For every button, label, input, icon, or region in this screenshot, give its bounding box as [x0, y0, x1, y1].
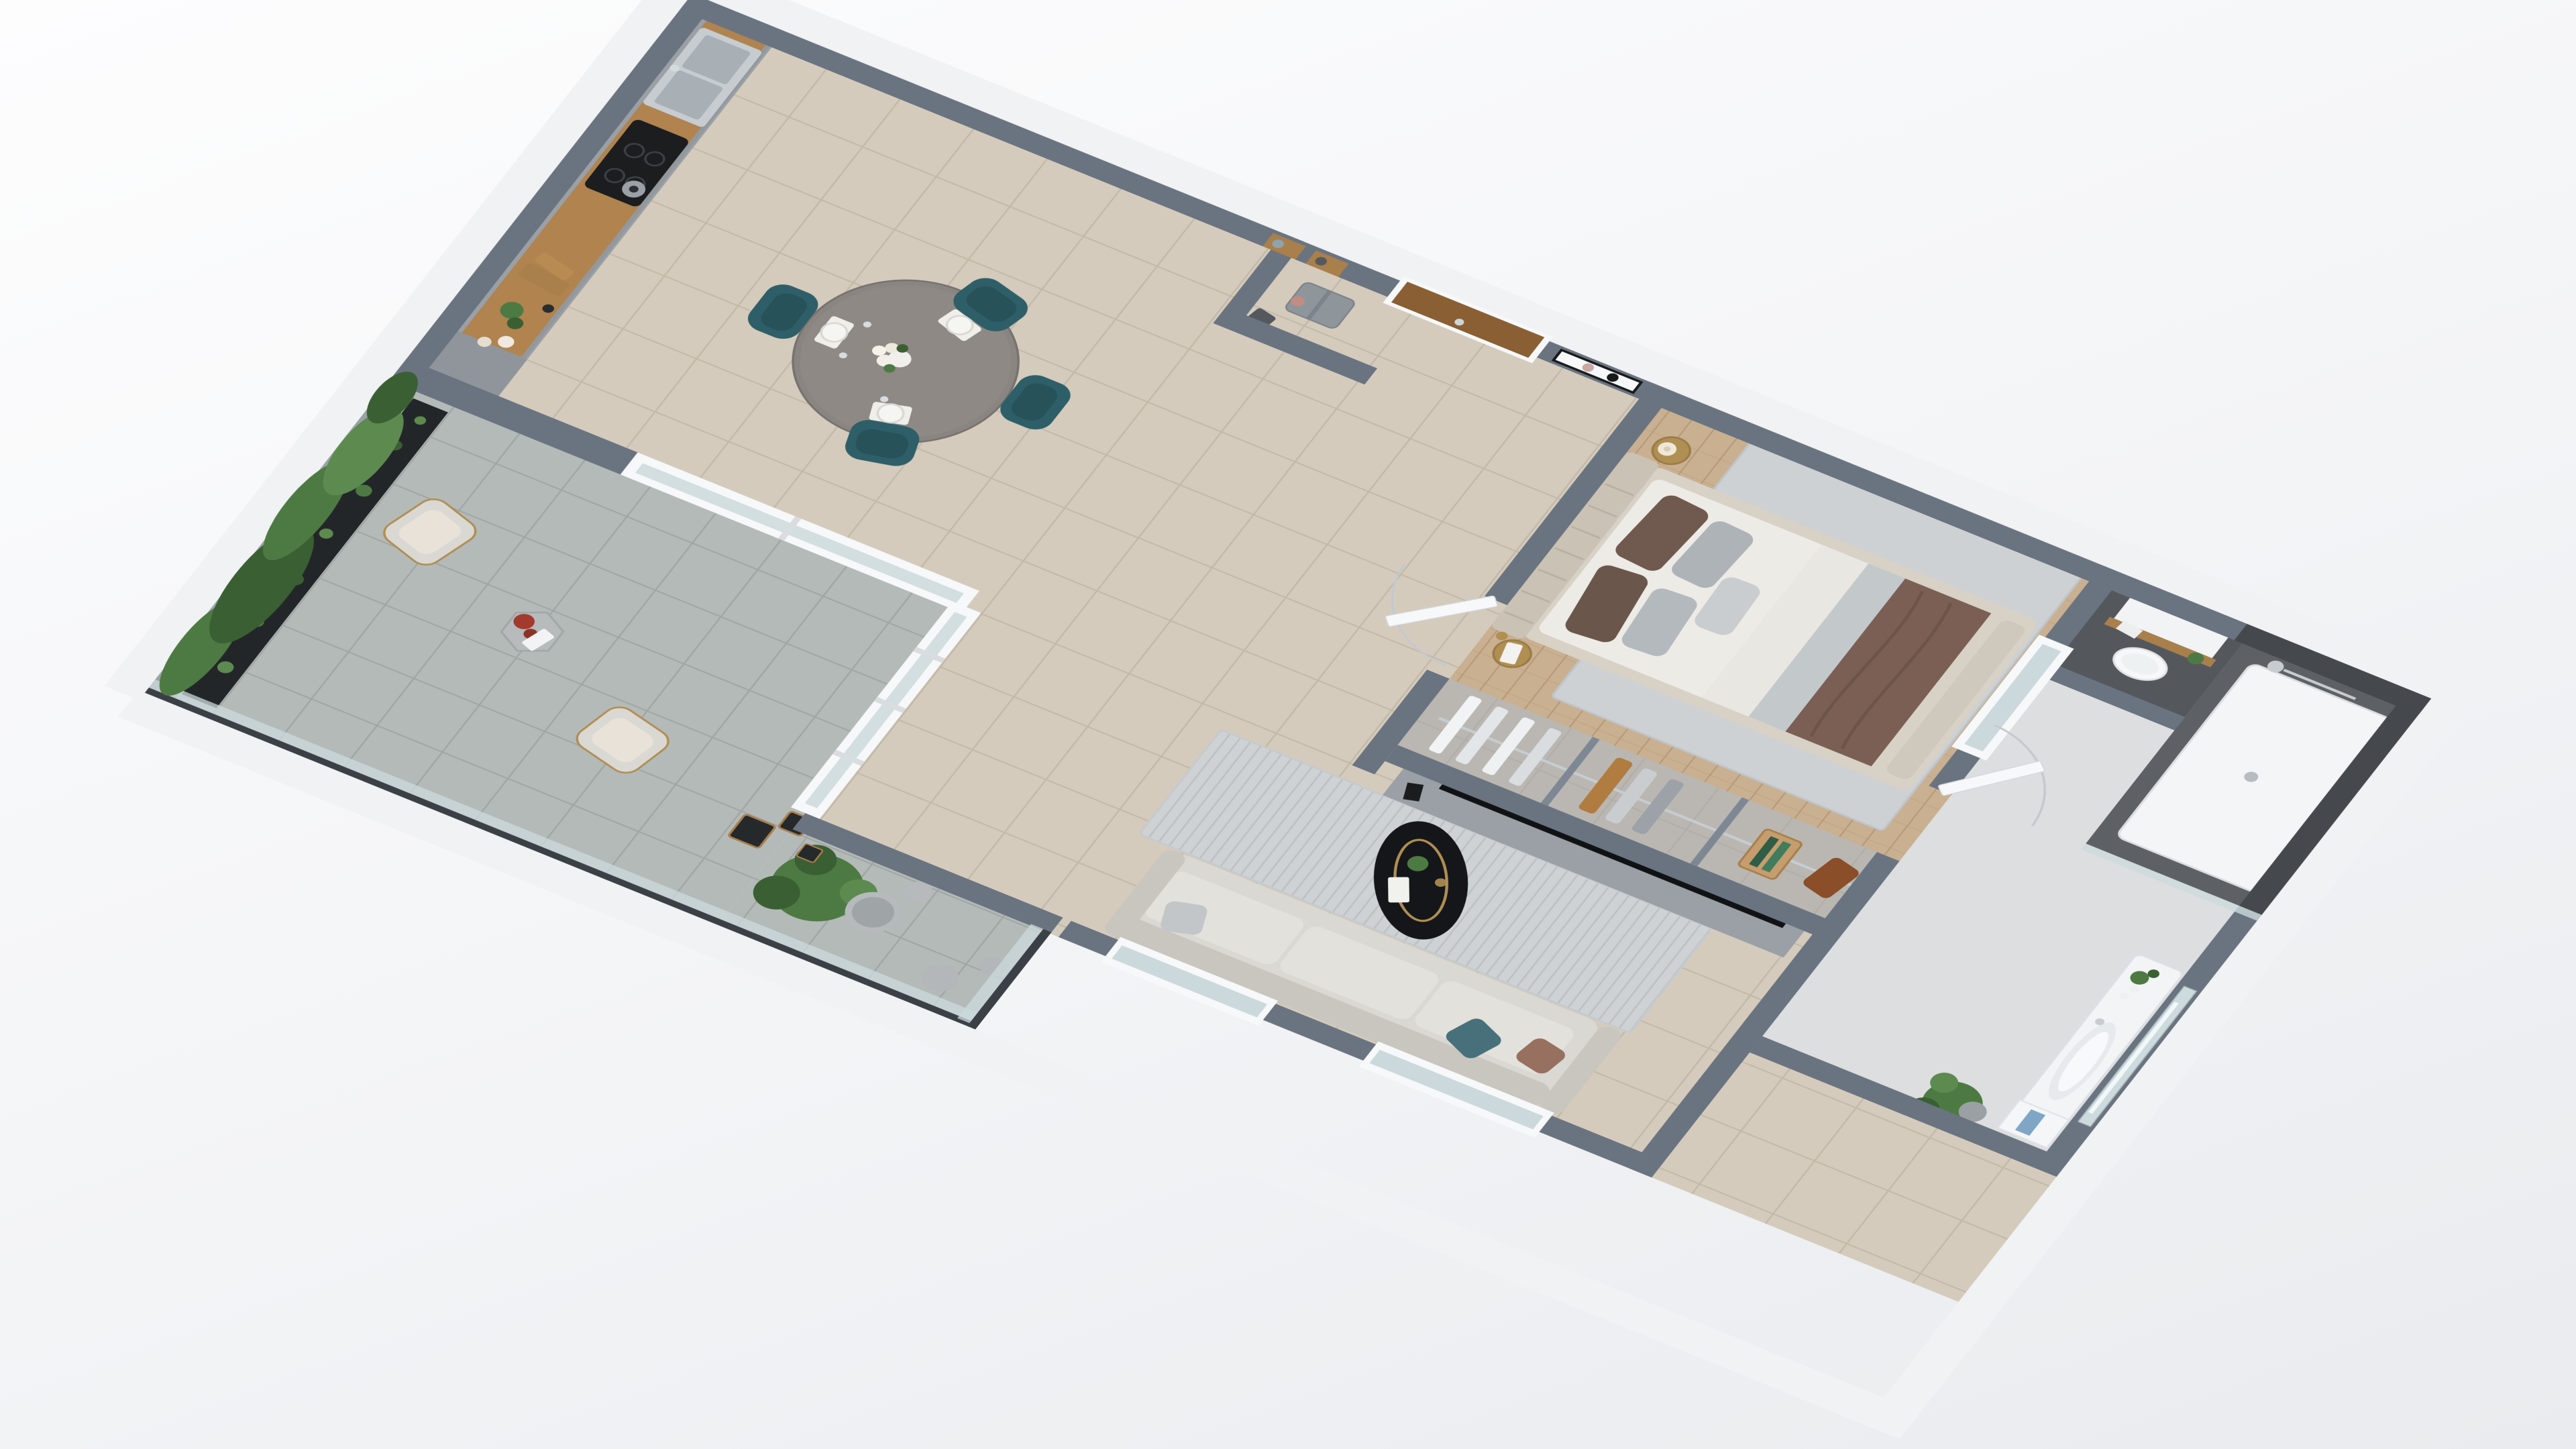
coffee-table-books [1388, 877, 1409, 902]
sofa-pillow-gray [1159, 900, 1209, 936]
render-stage: 3D isometric apartment floor plan render [0, 0, 2576, 1449]
